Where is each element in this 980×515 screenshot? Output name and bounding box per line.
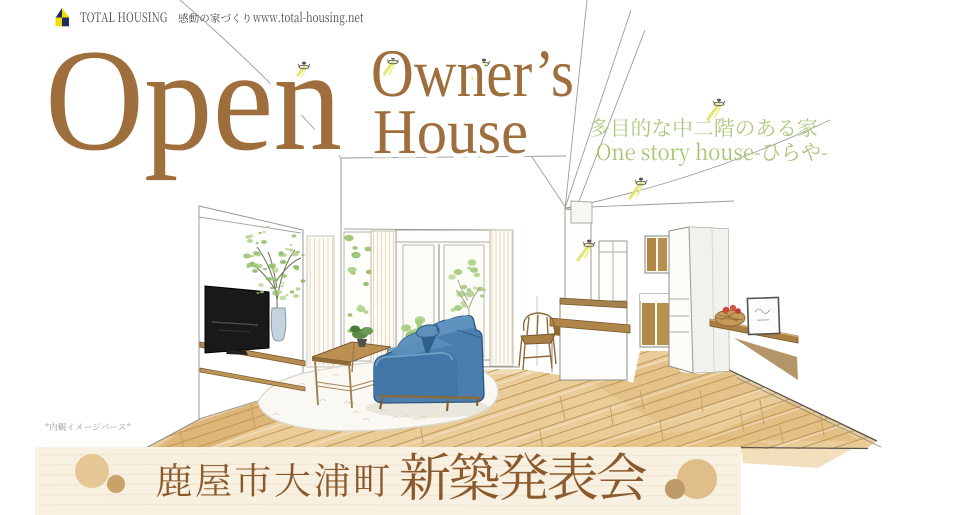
svg-text:House: House bbox=[373, 96, 528, 167]
svg-text:Open: Open bbox=[45, 19, 342, 181]
